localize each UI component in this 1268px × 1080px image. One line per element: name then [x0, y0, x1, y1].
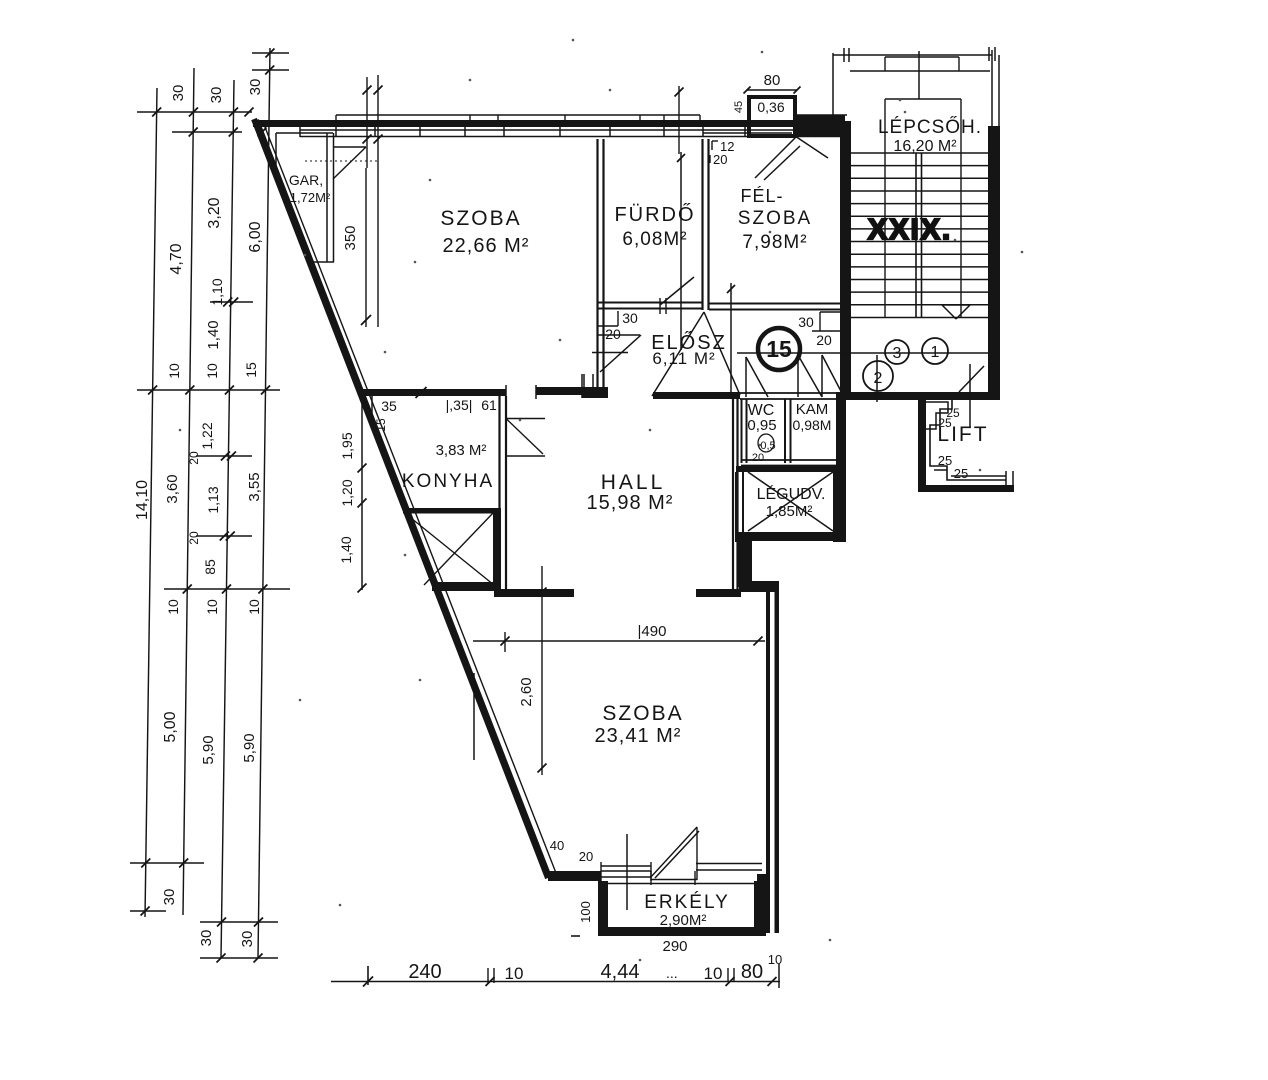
svg-text:22,66 M²: 22,66 M²	[443, 235, 530, 257]
svg-text:16,20 M²: 16,20 M²	[893, 138, 957, 155]
svg-text:FÉL-: FÉL-	[740, 186, 783, 206]
svg-text:1,40: 1,40	[338, 536, 354, 563]
svg-text:6,00: 6,00	[247, 221, 264, 252]
svg-text:1,10: 1,10	[209, 278, 225, 305]
svg-text:10: 10	[166, 363, 182, 379]
svg-text:20: 20	[605, 326, 621, 342]
svg-text:30: 30	[239, 931, 256, 948]
svg-text:290: 290	[662, 938, 687, 955]
svg-text:1,85M²: 1,85M²	[766, 503, 813, 520]
svg-text:ERKÉLY: ERKÉLY	[644, 892, 730, 913]
svg-text:20: 20	[579, 849, 593, 864]
svg-text:7,98M²: 7,98M²	[742, 232, 807, 253]
svg-text:240: 240	[408, 961, 441, 983]
svg-text:10: 10	[204, 599, 220, 615]
svg-text:20: 20	[713, 152, 727, 167]
svg-text:10: 10	[246, 599, 262, 615]
svg-text:LIFT: LIFT	[937, 423, 988, 446]
svg-text:10: 10	[165, 599, 181, 615]
svg-text:85: 85	[202, 559, 218, 575]
svg-text:LÉGUDV.: LÉGUDV.	[757, 484, 826, 503]
svg-text:4,70: 4,70	[168, 243, 185, 274]
svg-text:|,35|: |,35|	[446, 397, 473, 413]
svg-text:5,90: 5,90	[241, 733, 258, 762]
svg-text:2,60: 2,60	[518, 677, 535, 706]
svg-text:100: 100	[578, 901, 593, 923]
svg-text:3,20: 3,20	[206, 197, 223, 228]
svg-text:1,72M²: 1,72M²	[290, 190, 331, 205]
svg-text:30: 30	[208, 87, 225, 104]
svg-text:61: 61	[481, 397, 497, 413]
svg-text:...: ...	[666, 965, 678, 981]
svg-text:0,36: 0,36	[757, 99, 784, 115]
svg-text:0,5: 0,5	[760, 440, 775, 452]
svg-text:1,22: 1,22	[199, 422, 215, 449]
svg-text:1,13: 1,13	[205, 486, 221, 513]
svg-text:10: 10	[204, 363, 220, 379]
svg-text:30: 30	[798, 314, 814, 330]
svg-text:3,55: 3,55	[246, 472, 263, 501]
svg-text:5,00: 5,00	[162, 711, 179, 742]
svg-text:|490: |490	[638, 623, 667, 640]
svg-text:10: 10	[505, 964, 524, 983]
svg-text:SZOBA: SZOBA	[738, 208, 812, 229]
svg-text:30: 30	[198, 930, 215, 947]
svg-text:1,20: 1,20	[339, 479, 355, 506]
svg-text:KONYHA: KONYHA	[402, 471, 494, 492]
svg-text:350: 350	[342, 225, 359, 250]
svg-text:40: 40	[550, 838, 564, 853]
svg-text:SZOBA: SZOBA	[602, 702, 683, 725]
svg-text:45: 45	[733, 101, 745, 113]
svg-text:25: 25	[938, 453, 952, 468]
svg-text:0,95: 0,95	[747, 417, 776, 434]
svg-text:10: 10	[768, 952, 782, 967]
svg-text:XXIX.: XXIX.	[868, 214, 952, 246]
svg-text:3,83 M²: 3,83 M²	[436, 442, 487, 459]
svg-text:3,60: 3,60	[164, 474, 181, 503]
svg-text:5,90: 5,90	[200, 735, 217, 764]
svg-text:10: 10	[704, 964, 723, 983]
svg-text:6,11 M²: 6,11 M²	[652, 349, 715, 368]
svg-text:20: 20	[752, 452, 764, 464]
svg-text:35: 35	[381, 398, 397, 414]
svg-text:20: 20	[187, 451, 201, 465]
svg-text:15: 15	[243, 362, 259, 378]
svg-text:20: 20	[816, 332, 832, 348]
svg-text:30: 30	[247, 79, 264, 96]
svg-text:SZOBA: SZOBA	[440, 207, 521, 230]
svg-text:80: 80	[741, 961, 763, 983]
svg-text:6,08M²: 6,08M²	[622, 229, 687, 250]
svg-text:LÉPCSŐH.: LÉPCSŐH.	[878, 116, 982, 138]
svg-text:30: 30	[170, 85, 187, 102]
svg-text:1,40: 1,40	[205, 320, 222, 349]
svg-text:4,44: 4,44	[601, 961, 640, 983]
svg-text:GAR,: GAR,	[289, 172, 323, 188]
svg-text:15: 15	[374, 418, 388, 432]
svg-text:30: 30	[622, 310, 638, 326]
svg-text:30: 30	[161, 889, 178, 906]
svg-text:FÜRDŐ: FÜRDŐ	[614, 203, 695, 226]
svg-text:20: 20	[187, 531, 201, 545]
svg-text:23,41 M²: 23,41 M²	[595, 725, 682, 747]
svg-text:25: 25	[954, 466, 968, 481]
svg-text:80: 80	[764, 72, 781, 89]
svg-text:KAM: KAM	[796, 401, 829, 418]
svg-text:2: 2	[874, 370, 883, 387]
svg-text:15,98 M²: 15,98 M²	[587, 492, 674, 514]
svg-text:HALL: HALL	[601, 471, 666, 494]
svg-text:15: 15	[766, 336, 792, 362]
svg-text:1,95: 1,95	[339, 432, 355, 459]
svg-text:2,90M²: 2,90M²	[660, 912, 707, 929]
svg-text:0,98M: 0,98M	[793, 417, 832, 433]
svg-text:14,10: 14,10	[134, 480, 151, 520]
